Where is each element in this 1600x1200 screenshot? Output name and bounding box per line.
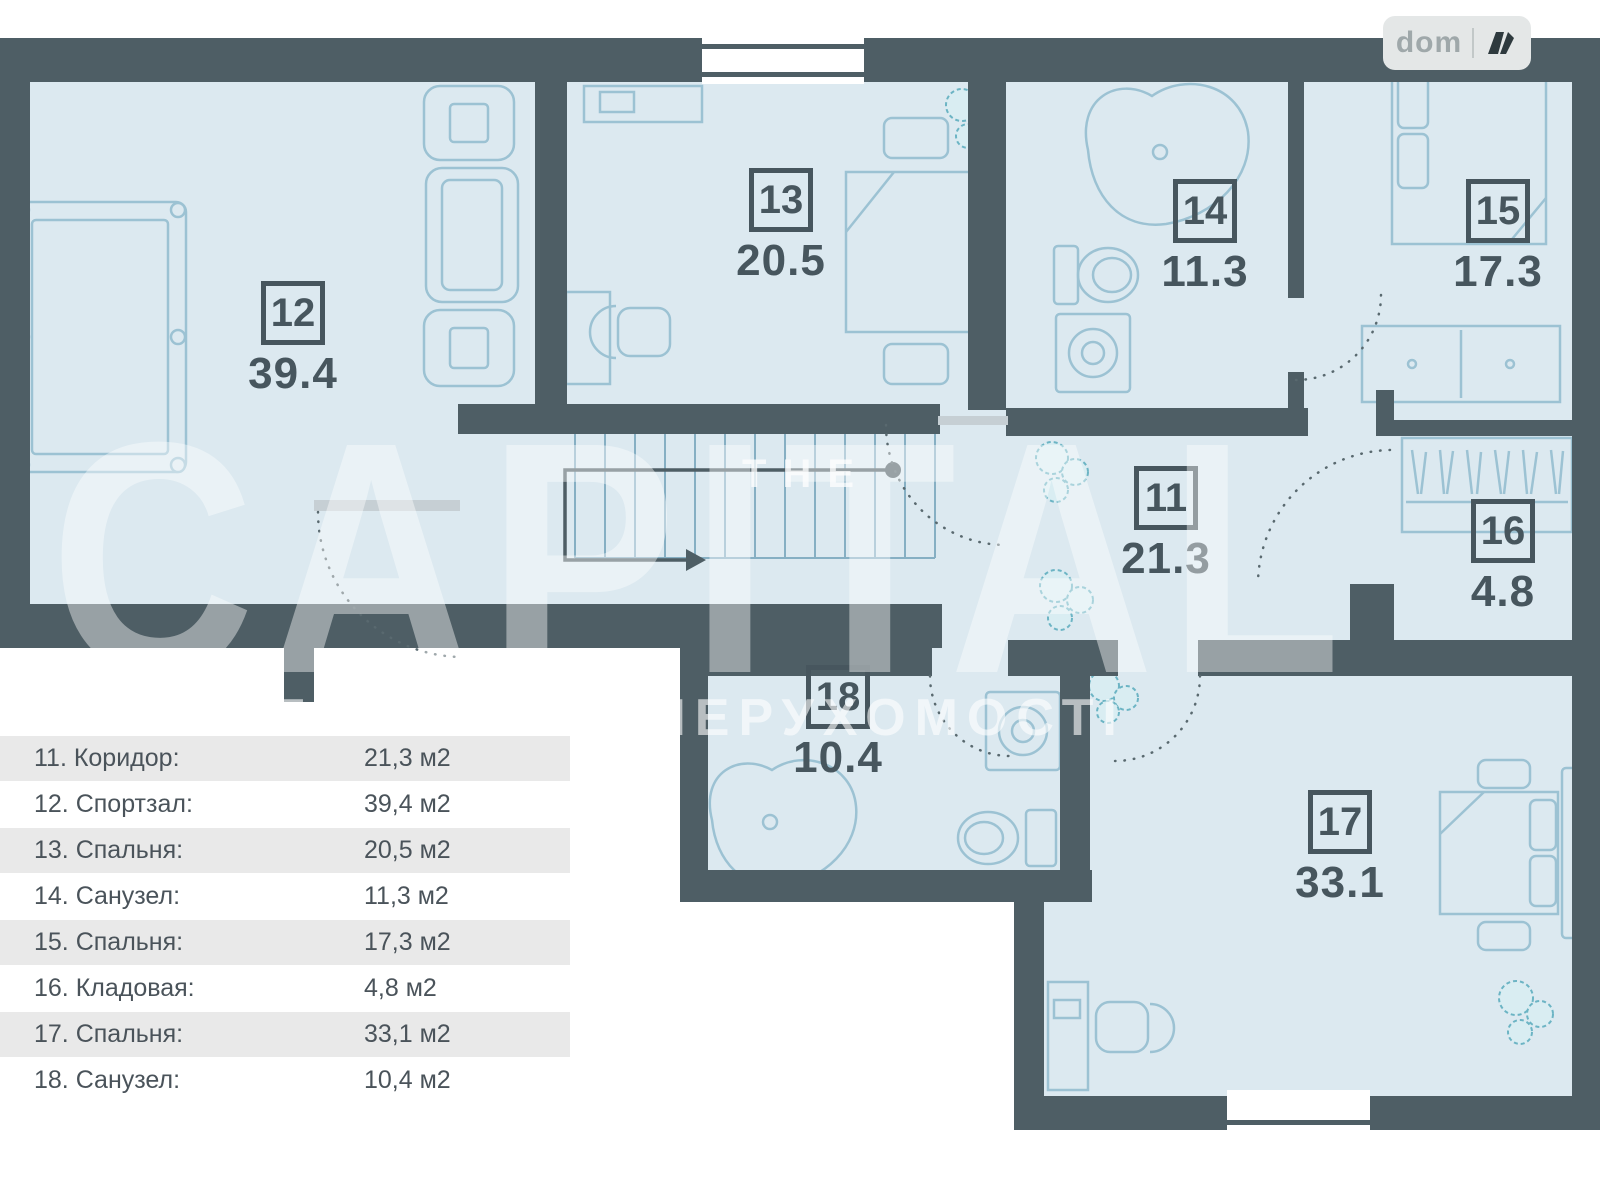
- legend-room-area: 21,3 м2: [364, 744, 451, 773]
- legend-room-name: 13. Спальня:: [34, 836, 364, 865]
- legend-row: 15. Спальня: 17,3 м2: [0, 920, 570, 965]
- legend-room-area: 10,4 м2: [364, 1066, 451, 1095]
- domria-logo-text: dom: [1396, 26, 1462, 60]
- legend-room-name: 11. Коридор:: [34, 744, 364, 773]
- legend-room-area: 17,3 м2: [364, 928, 451, 957]
- room-label-17: 17 33.1: [1255, 790, 1425, 908]
- room-label-18: 18 10.4: [753, 665, 923, 783]
- legend-room-name: 18. Санузел:: [34, 1066, 364, 1095]
- room-number: 13: [749, 168, 813, 232]
- wall: [1008, 640, 1118, 676]
- legend-room-area: 33,1 м2: [364, 1020, 451, 1049]
- legend-room-area: 11,3 м2: [364, 882, 449, 911]
- room-area: 33.1: [1255, 858, 1425, 908]
- wall: [1376, 390, 1394, 420]
- wall: [535, 82, 567, 428]
- legend-room-name: 16. Кладовая:: [34, 974, 364, 1003]
- room-fill-stair-hall: [455, 434, 540, 606]
- room-area: 20.5: [696, 236, 866, 286]
- legend-room-area: 4,8 м2: [364, 974, 437, 1003]
- floor-plan-page: 12 39.4 13 20.5 14 11.3 15 17.3 11 21.3 …: [0, 0, 1600, 1200]
- legend-row: 18. Санузел: 10,4 м2: [0, 1058, 570, 1103]
- legend-row: 17. Спальня: 33,1 м2: [0, 1012, 570, 1057]
- wall: [1006, 408, 1308, 436]
- wall: [968, 82, 1006, 410]
- room-label-16: 16 4.8: [1418, 499, 1588, 617]
- window: [1227, 1090, 1370, 1132]
- wall: [680, 640, 708, 902]
- wall: [1288, 60, 1304, 298]
- wall: [1370, 1096, 1600, 1130]
- legend-row: 12. Спортзал: 39,4 м2: [0, 782, 570, 827]
- room-area: 11.3: [1120, 247, 1290, 297]
- legend-row: 11. Коридор: 21,3 м2: [0, 736, 570, 781]
- wall: [284, 648, 314, 702]
- wall: [1376, 420, 1600, 436]
- room-area: 21.3: [1081, 534, 1251, 584]
- wall: [0, 38, 30, 648]
- legend-row: 16. Кладовая: 4,8 м2: [0, 966, 570, 1011]
- room-legend-table: 11. Коридор: 21,3 м2 12. Спортзал: 39,4 …: [0, 736, 570, 1104]
- window-frame-line: [702, 44, 864, 49]
- wall: [1014, 1096, 1227, 1130]
- room-number: 15: [1466, 179, 1530, 243]
- legend-row: 13. Спальня: 20,5 м2: [0, 828, 570, 873]
- window-frame-line: [702, 72, 864, 77]
- legend-row: 14. Санузел: 11,3 м2: [0, 874, 570, 919]
- door-sill: [938, 416, 1008, 425]
- room-label-11: 11 21.3: [1081, 466, 1251, 584]
- room-number: 11: [1134, 466, 1198, 530]
- room-number: 12: [261, 281, 325, 345]
- wall: [1350, 584, 1394, 662]
- room-number: 14: [1173, 179, 1237, 243]
- room-number: 17: [1308, 790, 1372, 854]
- room-number: 16: [1471, 499, 1535, 563]
- window-frame-line: [1227, 1120, 1370, 1125]
- legend-room-name: 17. Спальня:: [34, 1020, 364, 1049]
- wall: [1198, 640, 1600, 676]
- logo-divider: [1472, 28, 1474, 58]
- room-label-13: 13 20.5: [696, 168, 866, 286]
- legend-room-area: 39,4 м2: [364, 790, 451, 819]
- wall: [0, 38, 702, 82]
- room-label-14: 14 11.3: [1120, 179, 1290, 297]
- room-area: 4.8: [1418, 567, 1588, 617]
- legend-room-name: 14. Санузел:: [34, 882, 364, 911]
- room-label-12: 12 39.4: [208, 281, 378, 399]
- ria-mark-icon: [1484, 28, 1518, 58]
- wall: [458, 404, 940, 434]
- legend-room-area: 20,5 м2: [364, 836, 451, 865]
- legend-room-name: 12. Спортзал:: [34, 790, 364, 819]
- door-sill: [314, 500, 460, 511]
- room-area: 10.4: [753, 733, 923, 783]
- room-label-15: 15 17.3: [1413, 179, 1583, 297]
- wall: [1060, 676, 1090, 876]
- wall: [1014, 870, 1044, 1130]
- domria-logo: dom: [1383, 16, 1531, 70]
- legend-room-name: 15. Спальня:: [34, 928, 364, 957]
- room-area: 39.4: [208, 349, 378, 399]
- room-fill-bedroom-17-ext: [1044, 872, 1104, 1100]
- room-area: 17.3: [1413, 247, 1583, 297]
- room-number: 18: [806, 665, 870, 729]
